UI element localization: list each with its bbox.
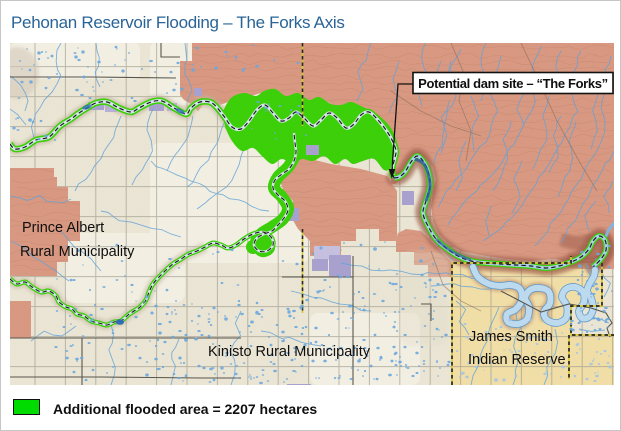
svg-text:Rural Municipality: Rural Municipality bbox=[20, 244, 135, 260]
svg-text:Prince Albert: Prince Albert bbox=[22, 220, 104, 236]
svg-text:Indian Reserve: Indian Reserve bbox=[468, 352, 566, 368]
svg-text:Potential dam site – “The Fork: Potential dam site – “The Forks” bbox=[418, 76, 608, 91]
svg-text:James Smith: James Smith bbox=[469, 329, 553, 345]
svg-text:Kinisto Rural Municipality: Kinisto Rural Municipality bbox=[208, 344, 371, 360]
